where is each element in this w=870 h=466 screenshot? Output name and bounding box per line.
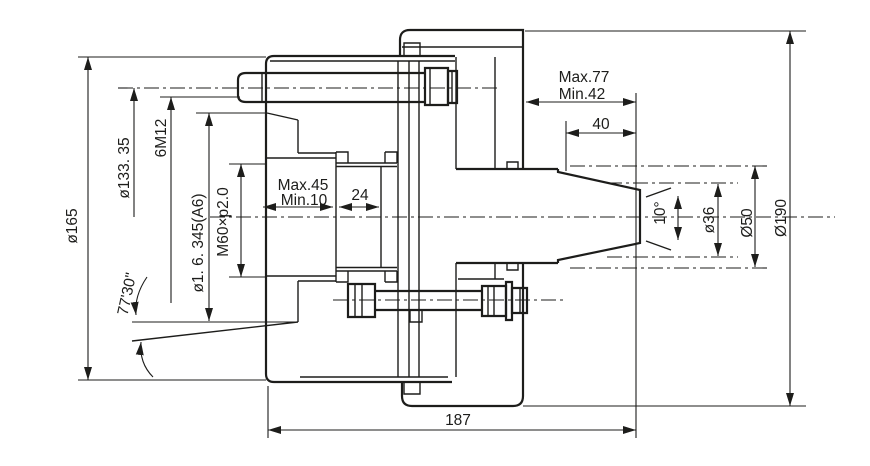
angle-ref-slant (132, 322, 298, 341)
label-taper-dia: ø1. 6. 345(A6) (190, 193, 207, 292)
label-taper-angle: 77'30" (115, 271, 141, 317)
plate-top-tab (404, 43, 420, 56)
label-6m12: 6M12 (153, 119, 170, 158)
plate-bottom-tab (404, 382, 420, 394)
label-max77: Max.77 (559, 69, 610, 86)
label-40: 40 (592, 116, 610, 133)
spindle-nose (456, 162, 640, 270)
label-dia190: Ø190 (773, 199, 790, 237)
collet-face-double-upper (336, 163, 397, 167)
collet-block-upper-right (385, 152, 397, 163)
label-187: 187 (445, 412, 471, 429)
collet-block-lower-left (336, 271, 348, 282)
lower-clamping-bolt (348, 282, 527, 322)
label-dia50: Ø50 (739, 208, 756, 238)
label-m60: M60×p2.0 (215, 187, 232, 257)
technical-drawing-page: ø165 ø133. 35 6M12 ø1. 6. 345(A6) M60×p2… (0, 0, 870, 466)
label-dia36: ø36 (701, 207, 718, 234)
collet-block-lower-right (385, 271, 397, 282)
arc-taper-angle-lower (141, 342, 153, 377)
collet-internals (336, 61, 419, 377)
collet-face-double-lower (336, 268, 397, 272)
drawing-canvas: ø165 ø133. 35 6M12 ø1. 6. 345(A6) M60×p2… (0, 0, 870, 466)
taper-envelope-upper (646, 188, 671, 197)
collet-block-upper-left (336, 152, 348, 163)
label-min42: Min.42 (559, 86, 606, 103)
lower-key-block (410, 310, 422, 322)
label-dia165: ø165 (64, 208, 81, 243)
label-dia133: ø133. 35 (116, 137, 133, 198)
upper-draw-bolt (238, 68, 457, 105)
label-24: 24 (351, 187, 369, 204)
bore-taper-upper (267, 113, 298, 120)
dimension-labels: ø165 ø133. 35 6M12 ø1. 6. 345(A6) M60×p2… (64, 69, 790, 429)
bolt-head (425, 68, 448, 105)
label-angle10: 10° (652, 201, 669, 224)
label-min10: Min.10 (281, 192, 328, 209)
taper-envelope-lower (646, 241, 671, 250)
lower-bolt-head-right-lines (488, 286, 494, 316)
